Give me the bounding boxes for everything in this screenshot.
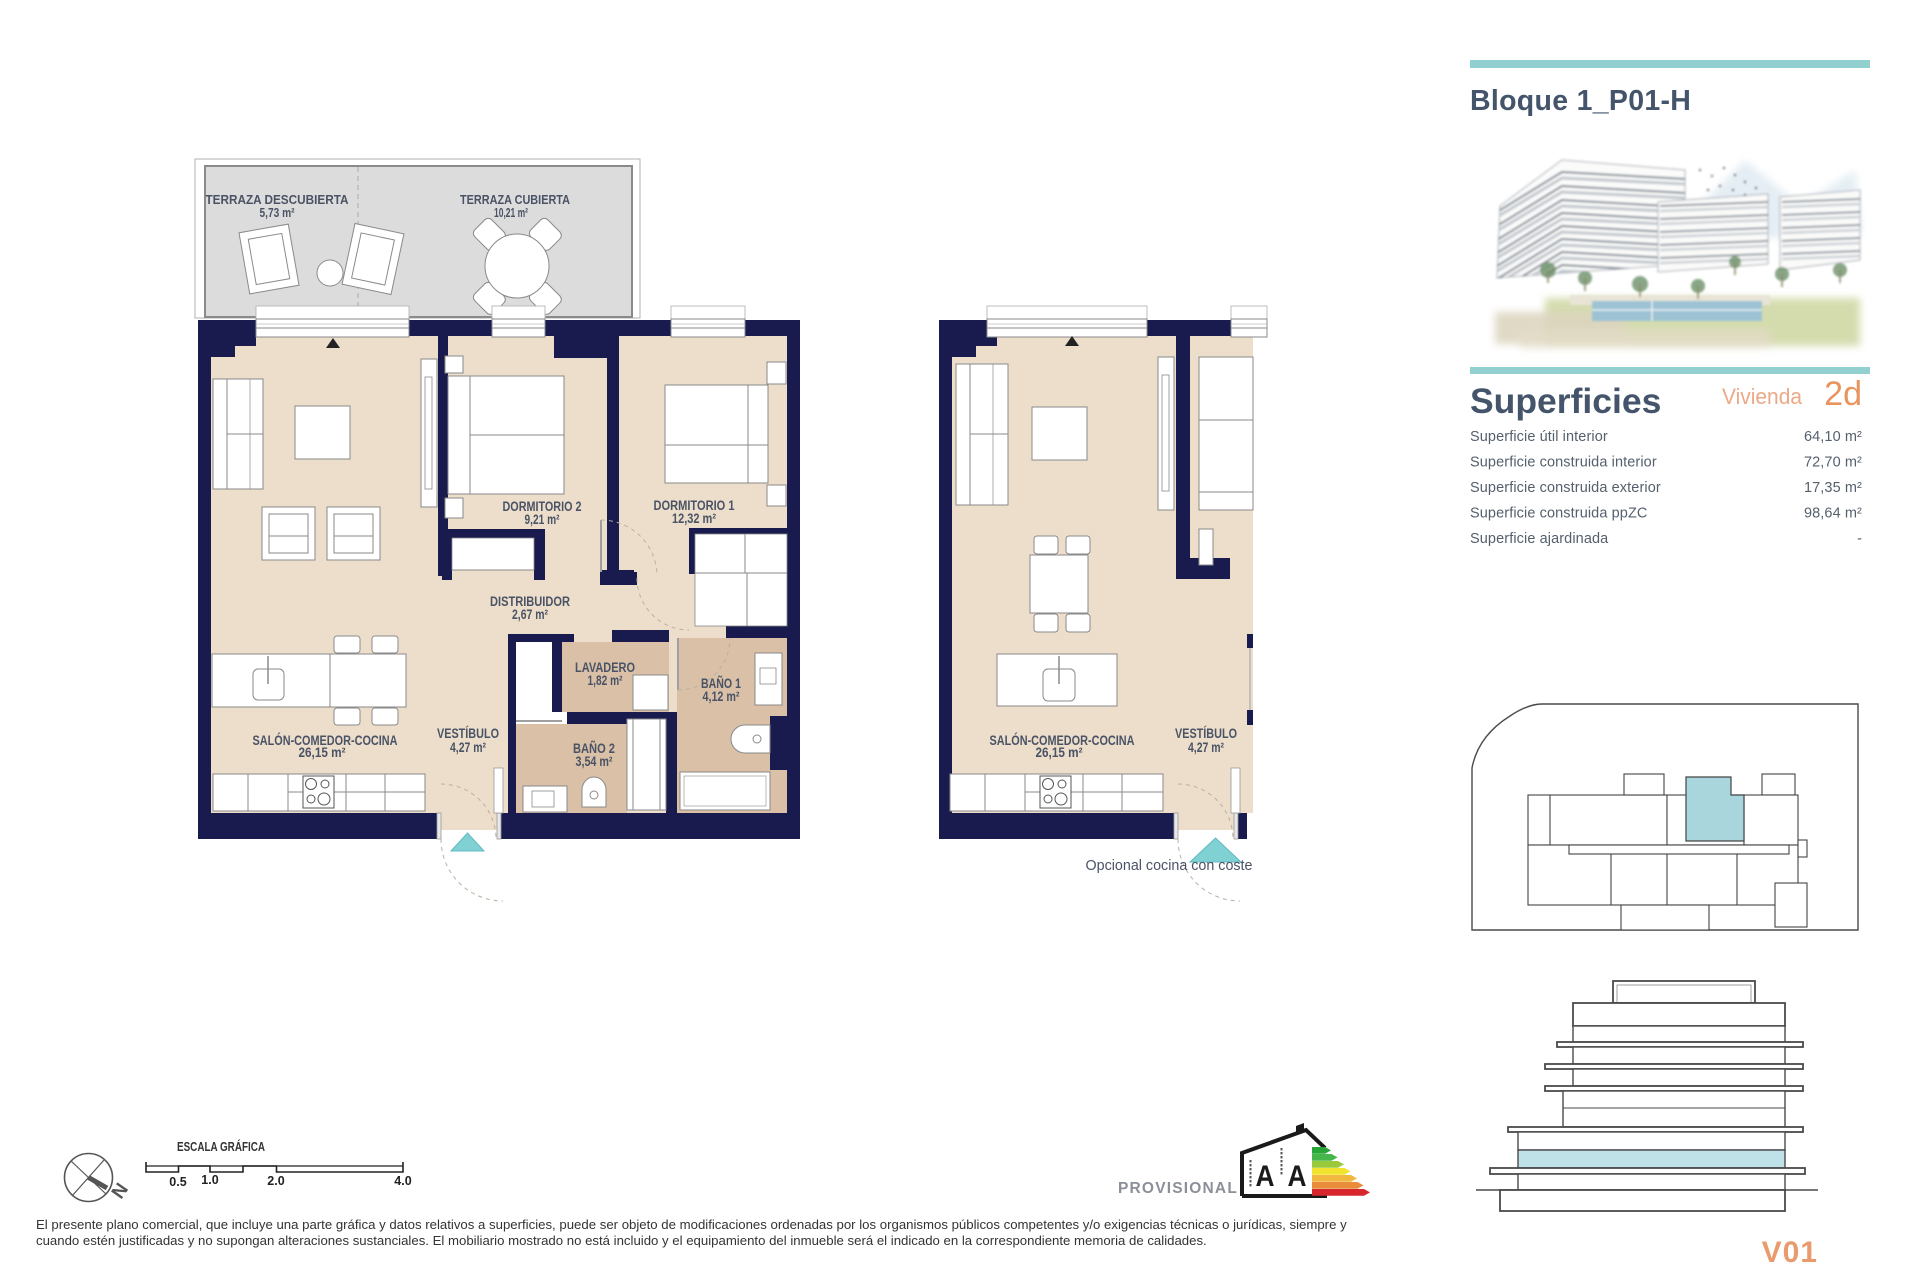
svg-text:5,73 m²: 5,73 m² [260, 205, 296, 220]
svg-text:1.0: 1.0 [201, 1173, 218, 1187]
svg-text:Superficies: Superficies [1470, 381, 1661, 421]
svg-text:ESCALA GRÁFICA: ESCALA GRÁFICA [177, 1139, 265, 1154]
svg-text:-: - [1857, 531, 1862, 547]
svg-text:2d: 2d [1824, 375, 1862, 413]
svg-text:Opcional cocina con coste: Opcional cocina con coste [1086, 857, 1253, 874]
svg-text:VESTÍBULO: VESTÍBULO [437, 726, 499, 741]
svg-text:Vivienda: Vivienda [1722, 384, 1803, 409]
svg-text:3,54 m²: 3,54 m² [576, 754, 613, 769]
svg-text:PROVISIONAL: PROVISIONAL [1118, 1180, 1238, 1197]
svg-text:4.0: 4.0 [394, 1174, 411, 1188]
svg-text:VESTÍBULO: VESTÍBULO [1175, 726, 1237, 741]
svg-text:12,32 m²: 12,32 m² [672, 511, 716, 526]
svg-text:2.0: 2.0 [267, 1174, 284, 1188]
svg-text:2,67 m²: 2,67 m² [512, 607, 548, 622]
svg-text:A: A [1288, 1160, 1307, 1193]
svg-text:26,15 m²: 26,15 m² [299, 745, 346, 760]
svg-text:10,21 m²: 10,21 m² [494, 205, 528, 220]
svg-text:4,12 m²: 4,12 m² [703, 689, 740, 704]
svg-text:64,10 m²: 64,10 m² [1804, 429, 1862, 445]
svg-text:Superficie ajardinada: Superficie ajardinada [1470, 531, 1609, 547]
svg-text:1,82 m²: 1,82 m² [588, 673, 623, 688]
svg-text:26,15 m²: 26,15 m² [1036, 745, 1083, 760]
svg-text:98,64 m²: 98,64 m² [1804, 506, 1862, 522]
svg-text:Superficie construida ppZC: Superficie construida ppZC [1470, 506, 1648, 522]
svg-text:A: A [1256, 1160, 1275, 1193]
svg-text:4,27 m²: 4,27 m² [450, 740, 486, 755]
svg-text:Superficie construida exterior: Superficie construida exterior [1470, 480, 1661, 496]
svg-text:72,70 m²: 72,70 m² [1804, 455, 1862, 471]
svg-text:V01: V01 [1762, 1236, 1818, 1269]
svg-text:cuando estén justificadas y no: cuando estén justificadas y no supongan … [36, 1233, 1207, 1248]
svg-text:El presente plano comercial, q: El presente plano comercial, que incluye… [36, 1217, 1347, 1232]
svg-text:Superficie construida interior: Superficie construida interior [1470, 455, 1657, 471]
svg-text:4,27 m²: 4,27 m² [1188, 740, 1224, 755]
svg-text:Bloque 1_P01-H: Bloque 1_P01-H [1470, 85, 1691, 117]
svg-text:Superficie útil interior: Superficie útil interior [1470, 429, 1608, 445]
svg-text:9,21 m²: 9,21 m² [525, 512, 560, 527]
svg-text:17,35 m²: 17,35 m² [1804, 480, 1862, 496]
svg-text:0.5: 0.5 [169, 1175, 186, 1189]
